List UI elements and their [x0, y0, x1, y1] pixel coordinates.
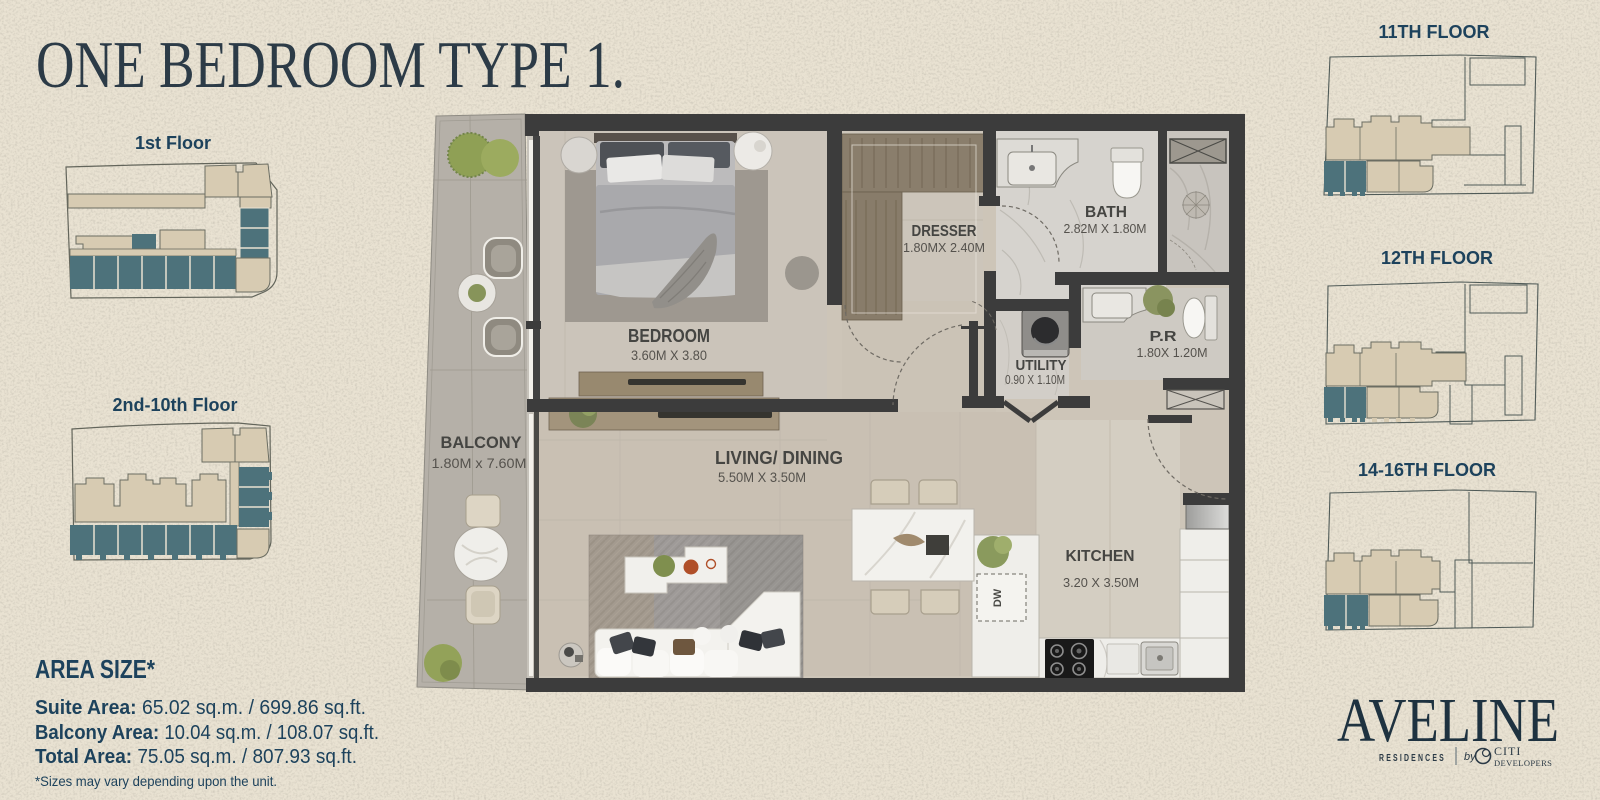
svg-text:UTILITY: UTILITY [1016, 358, 1067, 374]
svg-text:KITCHEN: KITCHEN [1066, 548, 1135, 565]
svg-text:1.80X 1.20M: 1.80X 1.20M [1137, 345, 1208, 360]
svg-text:1.80MX 2.40M: 1.80MX 2.40M [903, 240, 985, 255]
svg-text:Balcony Area: 10.04 sq.m. / 10: Balcony Area: 10.04 sq.m. / 108.07 sq.ft… [35, 722, 379, 744]
svg-text:1st Floor: 1st Floor [135, 133, 211, 153]
svg-text:0.90 X 1.10M: 0.90 X 1.10M [1005, 373, 1065, 387]
svg-text:DEVELOPERS: DEVELOPERS [1494, 758, 1552, 768]
svg-text:AREA SIZE*: AREA SIZE* [35, 654, 156, 684]
svg-text:LIVING/ DINING: LIVING/ DINING [715, 448, 843, 468]
svg-text:P.R: P.R [1150, 328, 1177, 345]
svg-text:RESIDENCES: RESIDENCES [1379, 753, 1446, 764]
svg-text:BALCONY: BALCONY [441, 433, 523, 452]
svg-text:AVELINE: AVELINE [1337, 687, 1559, 755]
svg-text:14-16TH FLOOR: 14-16TH FLOOR [1358, 460, 1496, 480]
svg-text:3.20 X 3.50M: 3.20 X 3.50M [1063, 575, 1139, 590]
svg-text:BEDROOM: BEDROOM [628, 326, 710, 346]
svg-text:ONE BEDROOM TYPE 1.: ONE BEDROOM TYPE 1. [36, 28, 625, 102]
svg-text:DRESSER: DRESSER [912, 223, 977, 240]
svg-text:11TH FLOOR: 11TH FLOOR [1378, 22, 1489, 42]
svg-text:1.80M x 7.60M: 1.80M x 7.60M [432, 456, 527, 471]
svg-text:BATH: BATH [1085, 204, 1127, 221]
svg-text:2nd-10th Floor: 2nd-10th Floor [113, 395, 238, 415]
svg-text:3.60M X 3.80: 3.60M X 3.80 [631, 348, 707, 363]
svg-text:DW: DW [992, 588, 1004, 607]
svg-text:12TH FLOOR: 12TH FLOOR [1381, 248, 1493, 268]
svg-text:5.50M X 3.50M: 5.50M X 3.50M [718, 470, 806, 485]
svg-text:2.82M X 1.80M: 2.82M X 1.80M [1064, 221, 1147, 236]
svg-text:Total Area: 75.05 sq.m. / 807.: Total Area: 75.05 sq.m. / 807.93 sq.ft. [35, 746, 357, 768]
svg-text:Suite Area: 65.02 sq.m. / 699.: Suite Area: 65.02 sq.m. / 699.86 sq.ft. [35, 697, 366, 719]
svg-text:*Sizes may vary depending upon: *Sizes may vary depending upon the unit. [35, 773, 277, 789]
svg-text:CITI: CITI [1494, 744, 1521, 758]
